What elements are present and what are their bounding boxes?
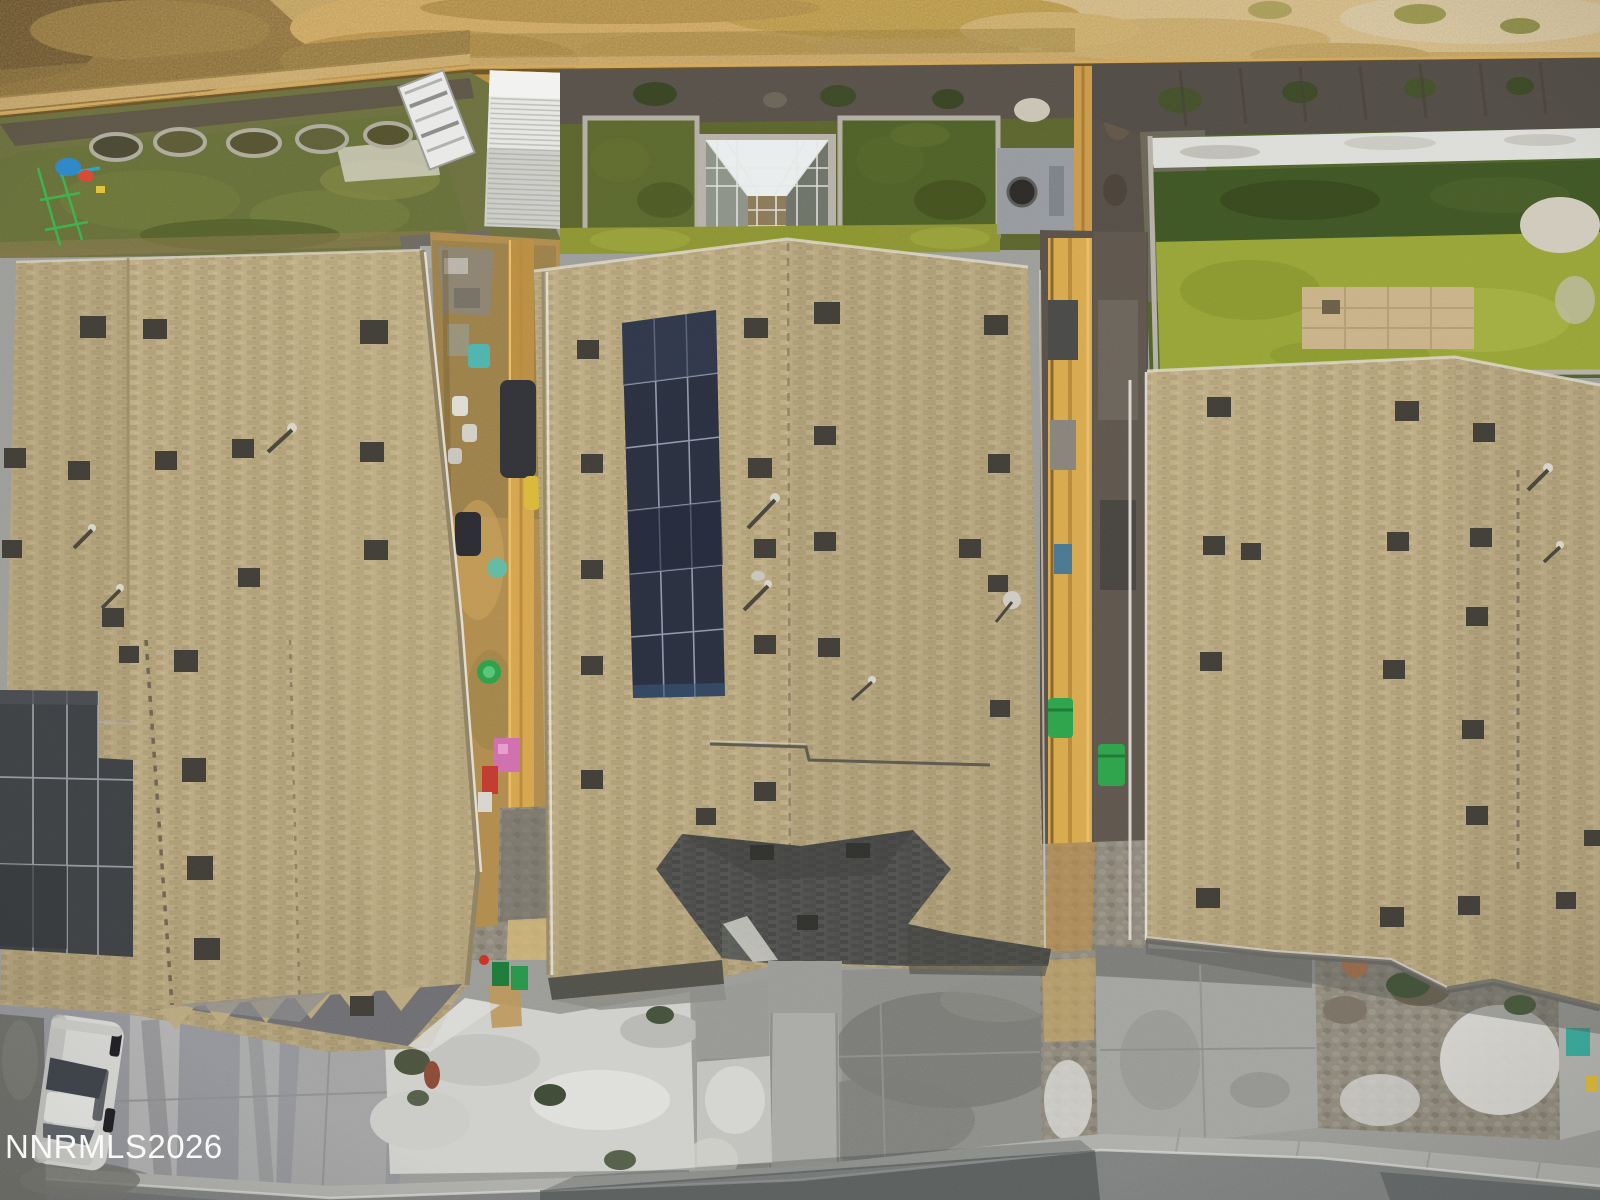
svg-text:NNRMLS2026: NNRMLS2026 — [5, 1128, 223, 1165]
